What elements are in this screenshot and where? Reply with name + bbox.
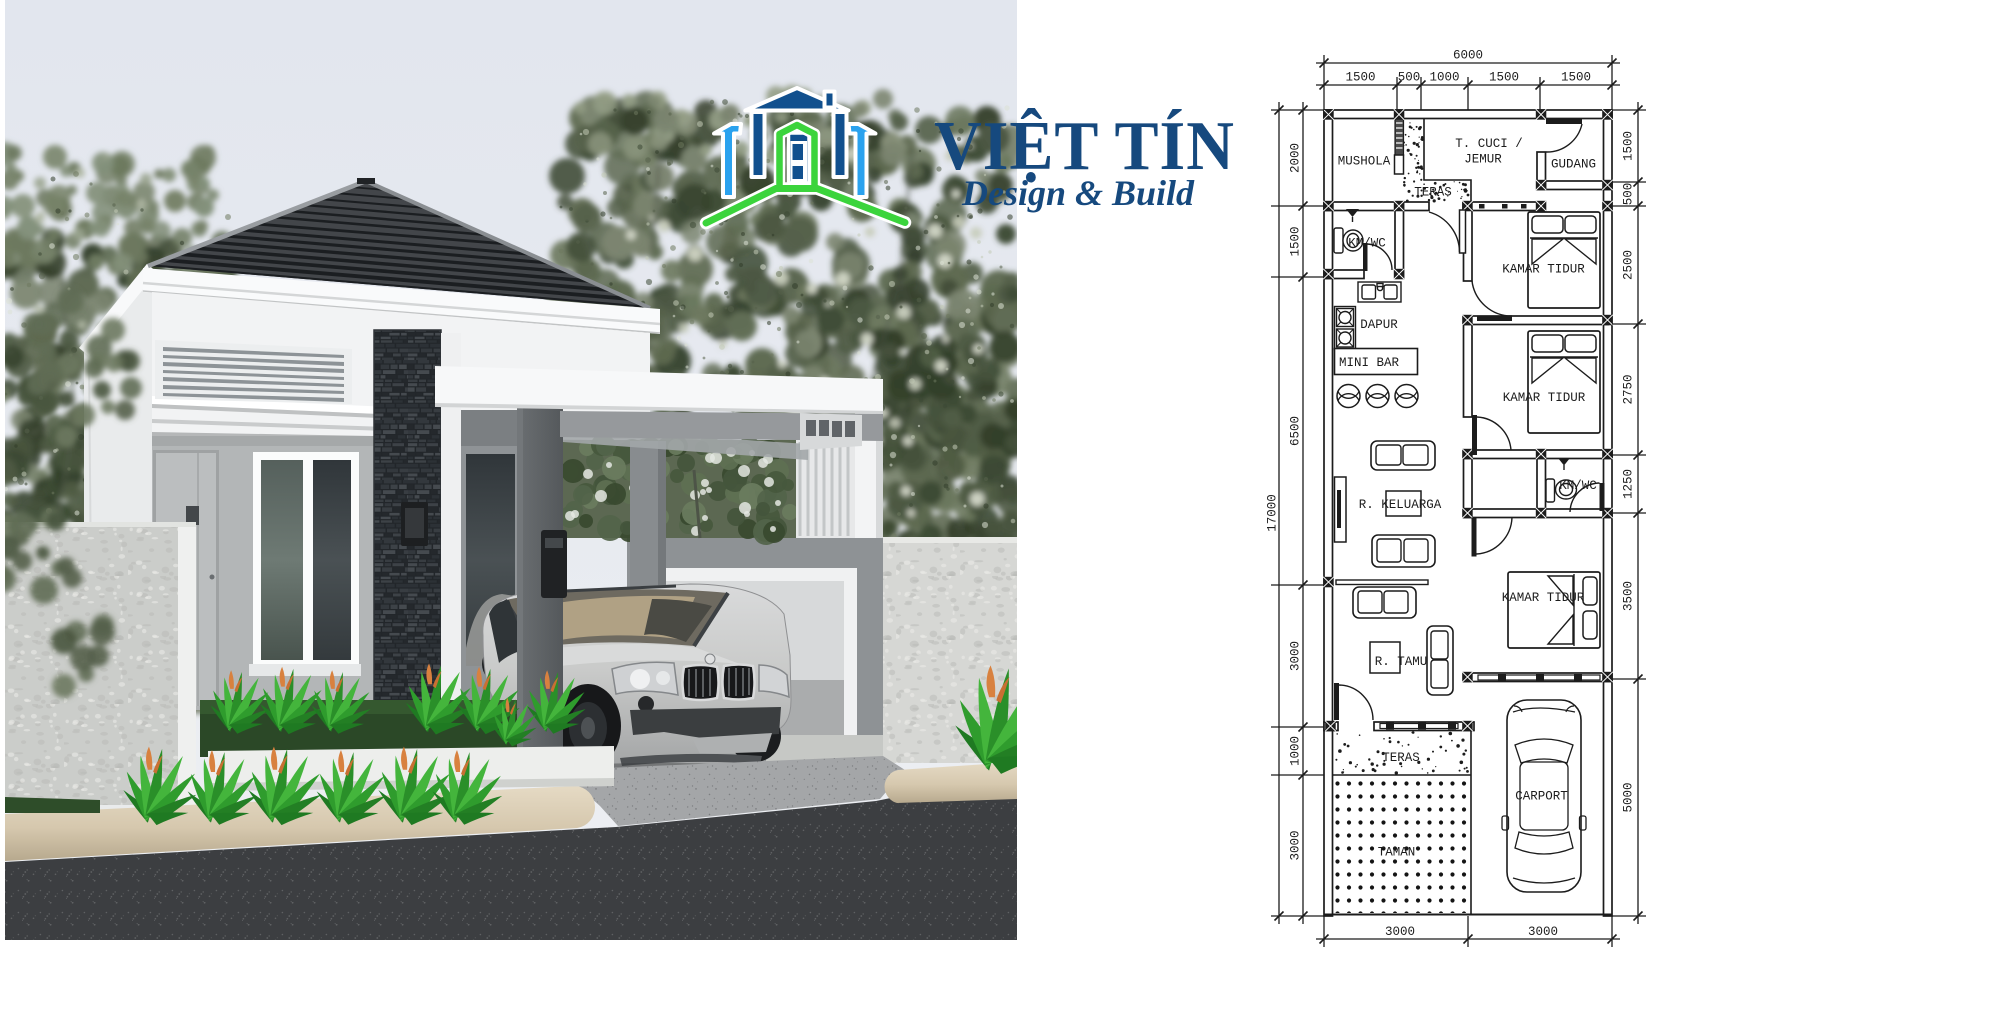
- svg-text:1500: 1500: [1622, 131, 1636, 161]
- svg-text:KAMAR TIDUR: KAMAR TIDUR: [1502, 263, 1585, 277]
- svg-text:3000: 3000: [1385, 925, 1415, 939]
- svg-text:1000: 1000: [1429, 71, 1459, 85]
- svg-text:TAMAN: TAMAN: [1378, 846, 1416, 860]
- svg-text:3000: 3000: [1528, 925, 1558, 939]
- svg-text:2750: 2750: [1622, 374, 1636, 404]
- svg-text:1500: 1500: [1345, 71, 1375, 85]
- svg-text:KAMAR TIDUR: KAMAR TIDUR: [1502, 591, 1585, 605]
- svg-text:500: 500: [1622, 183, 1636, 206]
- svg-text:TERAS: TERAS: [1382, 751, 1420, 765]
- svg-text:MUSHOLA: MUSHOLA: [1338, 155, 1391, 169]
- svg-text:6500: 6500: [1289, 416, 1303, 446]
- svg-text:R. TAMU: R. TAMU: [1375, 655, 1428, 669]
- svg-text:T. CUCI /: T. CUCI /: [1455, 137, 1523, 151]
- svg-text:CARPORT: CARPORT: [1515, 790, 1568, 804]
- svg-text:TERAS: TERAS: [1414, 186, 1452, 200]
- svg-text:JEMUR: JEMUR: [1464, 153, 1502, 167]
- svg-text:3000: 3000: [1289, 830, 1303, 860]
- svg-text:KAMAR TIDUR: KAMAR TIDUR: [1503, 391, 1586, 405]
- svg-text:KM/WC: KM/WC: [1559, 479, 1597, 493]
- svg-text:GUDANG: GUDANG: [1551, 158, 1596, 172]
- svg-text:1500: 1500: [1489, 71, 1519, 85]
- svg-text:R. KELUARGA: R. KELUARGA: [1359, 498, 1442, 512]
- svg-text:500: 500: [1398, 71, 1421, 85]
- svg-text:1000: 1000: [1289, 736, 1303, 766]
- svg-text:Design & Build: Design & Build: [961, 173, 1195, 213]
- svg-text:3000: 3000: [1289, 641, 1303, 671]
- svg-text:2000: 2000: [1289, 143, 1303, 173]
- svg-text:1250: 1250: [1622, 469, 1636, 499]
- svg-text:DAPUR: DAPUR: [1360, 318, 1398, 332]
- svg-text:MINI BAR: MINI BAR: [1339, 356, 1400, 370]
- svg-text:5000: 5000: [1622, 782, 1636, 812]
- svg-text:2500: 2500: [1622, 250, 1636, 280]
- svg-text:17000: 17000: [1266, 494, 1280, 532]
- svg-text:1500: 1500: [1561, 71, 1591, 85]
- svg-text:6000: 6000: [1453, 49, 1483, 63]
- svg-text:3500: 3500: [1622, 581, 1636, 611]
- svg-text:1500: 1500: [1289, 226, 1303, 256]
- svg-text:KM/WC: KM/WC: [1348, 237, 1386, 251]
